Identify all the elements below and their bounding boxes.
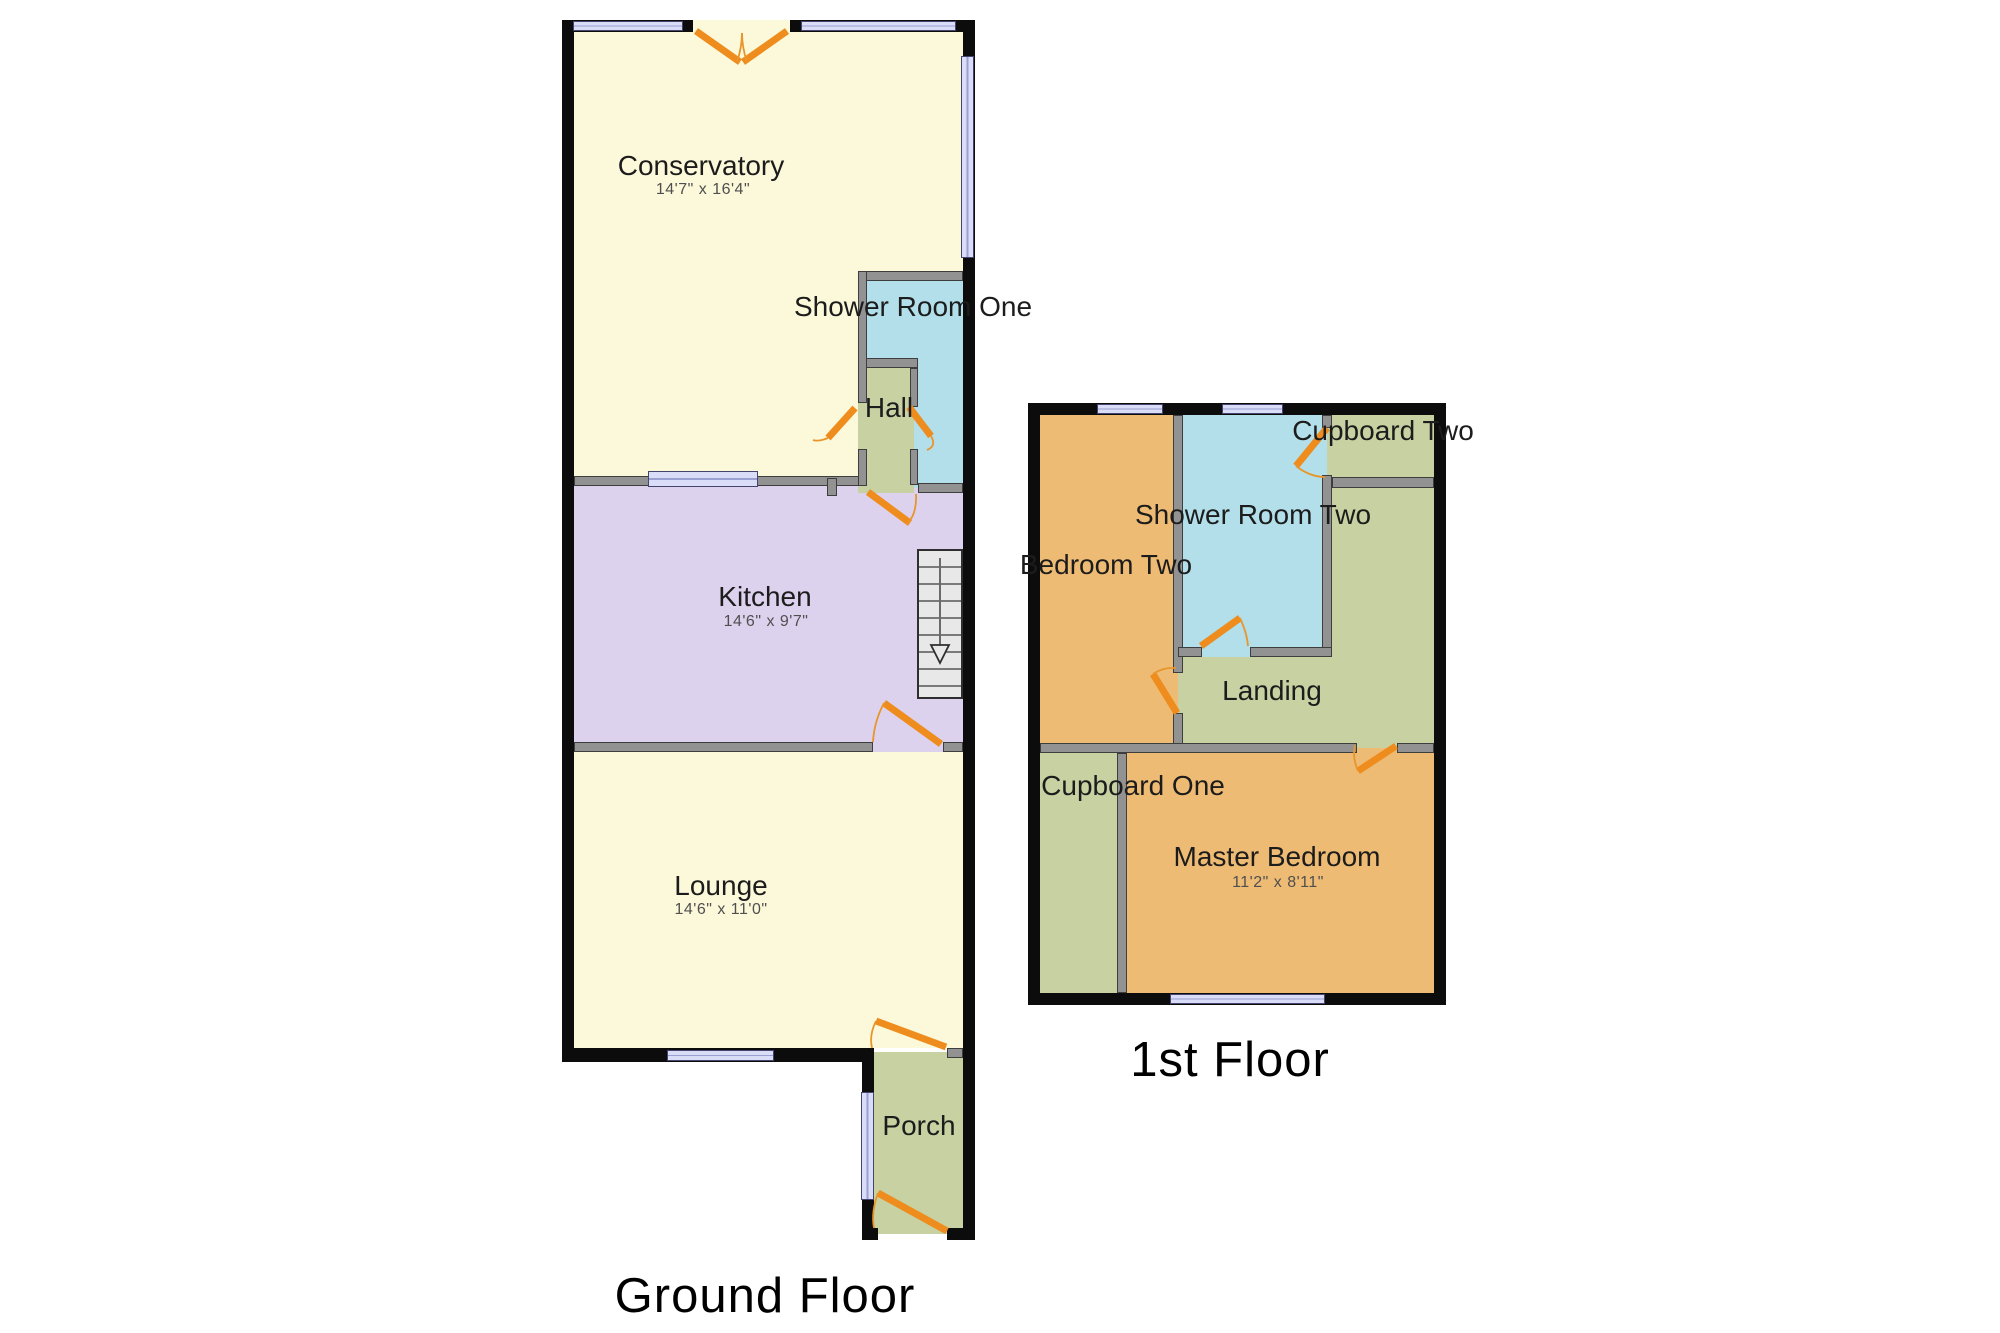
wall-shower-one-bottom (918, 483, 963, 493)
label-shower-room-two: Shower Room Two (1135, 499, 1371, 531)
door-and-stairs-layer (0, 0, 2000, 1333)
label-shower-room-one: Shower Room One (794, 291, 1032, 323)
window-master-bottom (1170, 994, 1325, 1004)
dims-master-bedroom: 11'2" x 8'11" (1232, 874, 1324, 892)
window-conservatory-right (961, 56, 974, 258)
wall-lounge-porch-stub (947, 1048, 963, 1058)
floorplan-canvas: Conservatory 14'7" x 16'4" Shower Room O… (0, 0, 2000, 1333)
dims-lounge: 14'6" x 11'0" (674, 901, 767, 919)
wall-ground-left (562, 20, 574, 1062)
wall-hall-notch (866, 358, 918, 368)
room-shower-one-side (914, 360, 963, 488)
window-shower2-top (1222, 404, 1283, 414)
wall-hall-left-stub (858, 449, 867, 486)
label-cupboard-one: Cupboard One (1041, 770, 1225, 802)
wall-kitchen-lounge-stub (943, 742, 963, 752)
label-hall: Hall (865, 392, 913, 424)
room-shower-two (1178, 415, 1327, 657)
label-master-bedroom: Master Bedroom (1174, 841, 1381, 873)
wall-porch-bottom-left (862, 1228, 878, 1240)
window-conservatory-top-left (573, 21, 683, 31)
window-lounge-bottom (667, 1050, 774, 1061)
window-conservatory-top-right (801, 21, 956, 31)
label-cupboard-two: Cupboard Two (1292, 415, 1474, 447)
dims-conservatory: 14'7" x 16'4" (656, 181, 750, 199)
wall-bedroom2-shower2 (1173, 415, 1183, 673)
title-first-floor: 1st Floor (1130, 1032, 1330, 1088)
label-conservatory: Conservatory (618, 150, 785, 182)
french-door-opening (693, 20, 790, 32)
wall-first-right (1434, 403, 1446, 1005)
wall-cupboard2-bottom (1332, 477, 1434, 488)
window-porch-left (861, 1092, 874, 1200)
wall-landing-master (1040, 743, 1357, 753)
window-bedroom2-top (1097, 404, 1163, 414)
wall-first-left (1028, 403, 1040, 1005)
wall-hall-right-stub (910, 449, 918, 485)
room-cupboard-two-strip (1327, 415, 1434, 748)
window-kitchen-internal (648, 471, 758, 487)
wall-shower2-bottom-right (1250, 647, 1332, 657)
wall-kitchen-jog (827, 478, 837, 496)
label-landing: Landing (1222, 675, 1322, 707)
wall-kitchen-lounge (574, 742, 873, 752)
wall-shower2-bottom-left (1178, 647, 1202, 657)
label-porch: Porch (882, 1110, 955, 1142)
dims-kitchen: 14'6" x 9'7" (724, 613, 809, 631)
room-porch (868, 1052, 963, 1234)
wall-porch-bottom-right (947, 1228, 975, 1240)
wall-landing-master-stub (1397, 743, 1434, 753)
label-bedroom-two: Bedroom Two (1020, 549, 1192, 581)
wall-shower-one-top (858, 271, 963, 281)
label-kitchen: Kitchen (718, 581, 811, 613)
title-ground-floor: Ground Floor (615, 1268, 916, 1324)
room-bedroom-two (1040, 415, 1178, 748)
label-lounge: Lounge (674, 870, 767, 902)
